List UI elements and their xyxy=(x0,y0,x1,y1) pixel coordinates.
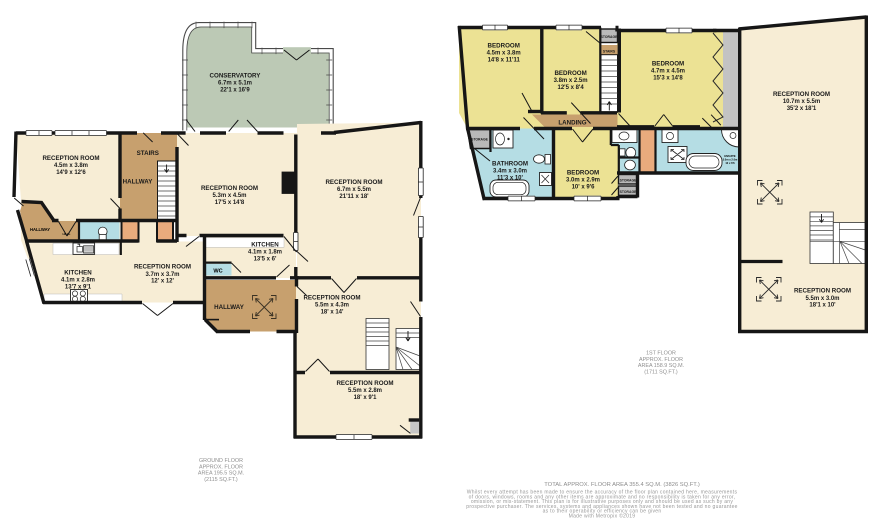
svg-text:STORAGE: STORAGE xyxy=(471,138,488,142)
svg-text:4.1m x 1.8m: 4.1m x 1.8m xyxy=(248,250,282,256)
svg-text:RECEPTION ROOM: RECEPTION ROOM xyxy=(134,264,191,271)
svg-text:BEDROOM: BEDROOM xyxy=(567,170,599,177)
svg-text:21'11 x 18': 21'11 x 18' xyxy=(339,194,369,200)
svg-text:3.7m x 3.7m: 3.7m x 3.7m xyxy=(145,272,179,278)
svg-text:RECEPTION ROOM: RECEPTION ROOM xyxy=(325,179,382,186)
svg-text:HALLWAY: HALLWAY xyxy=(123,178,154,185)
svg-text:11'3 x 10': 11'3 x 10' xyxy=(497,176,523,182)
svg-text:TOTAL APPROX. FLOOR AREA 355.4: TOTAL APPROX. FLOOR AREA 355.4 SQ.M. (38… xyxy=(544,482,700,488)
svg-text:22'1 x 16'9: 22'1 x 16'9 xyxy=(220,88,250,94)
svg-text:1ST FLOOR: 1ST FLOOR xyxy=(646,351,676,357)
svg-text:14'9 x 12'6: 14'9 x 12'6 xyxy=(56,170,86,176)
svg-text:APPROX. FLOOR: APPROX. FLOOR xyxy=(639,357,683,363)
svg-text:17'5 x 14'8: 17'5 x 14'8 xyxy=(215,200,245,206)
svg-text:STORAGE: STORAGE xyxy=(620,190,637,194)
svg-text:13'5 x 6': 13'5 x 6' xyxy=(254,256,277,262)
svg-text:12 x 6'6: 12 x 6'6 xyxy=(725,161,735,165)
svg-text:6.7m x 5.1m: 6.7m x 5.1m xyxy=(218,81,252,87)
svg-text:AREA 195.5 SQ.M.: AREA 195.5 SQ.M. xyxy=(198,471,244,477)
svg-text:4.1m x 2.8m: 4.1m x 2.8m xyxy=(61,278,95,284)
svg-text:STAIRS: STAIRS xyxy=(603,50,616,54)
svg-text:3.4m x 3.0m: 3.4m x 3.0m xyxy=(493,169,527,175)
svg-text:RECEPTION ROOM: RECEPTION ROOM xyxy=(794,288,851,295)
svg-text:5.5m x 3.0m: 5.5m x 3.0m xyxy=(805,296,839,302)
svg-text:4.7m x 4.5m: 4.7m x 4.5m xyxy=(651,69,685,75)
svg-text:BEDROOM: BEDROOM xyxy=(554,70,586,77)
svg-text:BEDROOM: BEDROOM xyxy=(652,60,684,67)
svg-text:10' x 9'6: 10' x 9'6 xyxy=(572,185,596,191)
svg-text:BATHROOM: BATHROOM xyxy=(492,161,528,168)
svg-text:5.5m x 4.3m: 5.5m x 4.3m xyxy=(315,303,349,309)
svg-text:KITCHEN: KITCHEN xyxy=(64,269,92,276)
svg-text:10.7m x 5.5m: 10.7m x 5.5m xyxy=(783,99,820,105)
svg-text:13'7 x 9'1: 13'7 x 9'1 xyxy=(65,284,92,290)
svg-text:KITCHEN: KITCHEN xyxy=(251,241,279,248)
svg-text:Made with Metropix ©2019: Made with Metropix ©2019 xyxy=(569,513,636,519)
svg-text:STAIRS: STAIRS xyxy=(137,150,159,157)
svg-text:(2115 SQ.FT.): (2115 SQ.FT.) xyxy=(204,477,238,483)
svg-text:BEDROOM: BEDROOM xyxy=(488,43,520,50)
svg-text:18' x 14': 18' x 14' xyxy=(321,309,344,315)
svg-text:GROUND FLOOR: GROUND FLOOR xyxy=(199,458,243,464)
svg-text:RECEPTION ROOM: RECEPTION ROOM xyxy=(201,185,258,192)
svg-text:RECEPTION ROOM: RECEPTION ROOM xyxy=(303,294,360,301)
svg-text:12' x 12': 12' x 12' xyxy=(151,279,174,285)
svg-text:15'3 x 14'8: 15'3 x 14'8 xyxy=(653,75,683,81)
svg-text:HALLWAY: HALLWAY xyxy=(30,227,50,232)
svg-text:STORAGE: STORAGE xyxy=(620,179,637,183)
svg-text:CONSERVATORY: CONSERVATORY xyxy=(210,73,262,80)
svg-text:RECEPTION ROOM: RECEPTION ROOM xyxy=(42,155,99,162)
svg-text:(1711 SQ.FT.): (1711 SQ.FT.) xyxy=(644,369,678,375)
svg-text:3.0m x 2.0m: 3.0m x 2.0m xyxy=(723,158,738,162)
svg-text:ENSUITE: ENSUITE xyxy=(724,154,736,158)
svg-text:3.0m x 2.9m: 3.0m x 2.9m xyxy=(566,178,600,184)
svg-text:4.5m x 3.8m: 4.5m x 3.8m xyxy=(487,51,521,57)
svg-text:RECEPTION ROOM: RECEPTION ROOM xyxy=(336,380,393,387)
svg-text:RECEPTION ROOM: RECEPTION ROOM xyxy=(773,91,830,98)
svg-text:APPROX. FLOOR: APPROX. FLOOR xyxy=(199,464,243,470)
svg-text:3.8m x 2.5m: 3.8m x 2.5m xyxy=(554,78,588,84)
svg-text:LANDING: LANDING xyxy=(558,119,586,126)
svg-text:STORAGE: STORAGE xyxy=(601,35,618,39)
svg-text:35'2 x 18'1: 35'2 x 18'1 xyxy=(787,106,817,112)
svg-text:18'1 x 10': 18'1 x 10' xyxy=(809,303,836,309)
svg-text:HALL: HALL xyxy=(63,232,71,236)
svg-text:5.5m x 2.8m: 5.5m x 2.8m xyxy=(348,388,382,394)
svg-text:14'8 x 11'11: 14'8 x 11'11 xyxy=(488,58,521,64)
svg-text:AREA 158.9 SQ.M.: AREA 158.9 SQ.M. xyxy=(638,363,684,369)
svg-text:12'5 x 8'4: 12'5 x 8'4 xyxy=(557,85,584,91)
svg-text:HALLWAY: HALLWAY xyxy=(214,304,245,311)
svg-text:18' x 9'1: 18' x 9'1 xyxy=(354,395,378,401)
svg-text:WC: WC xyxy=(213,269,222,275)
svg-text:6.7m x 5.5m: 6.7m x 5.5m xyxy=(337,187,371,193)
svg-text:5.3m x 4.5m: 5.3m x 4.5m xyxy=(212,193,246,199)
svg-text:4.5m x 3.8m: 4.5m x 3.8m xyxy=(54,163,88,169)
